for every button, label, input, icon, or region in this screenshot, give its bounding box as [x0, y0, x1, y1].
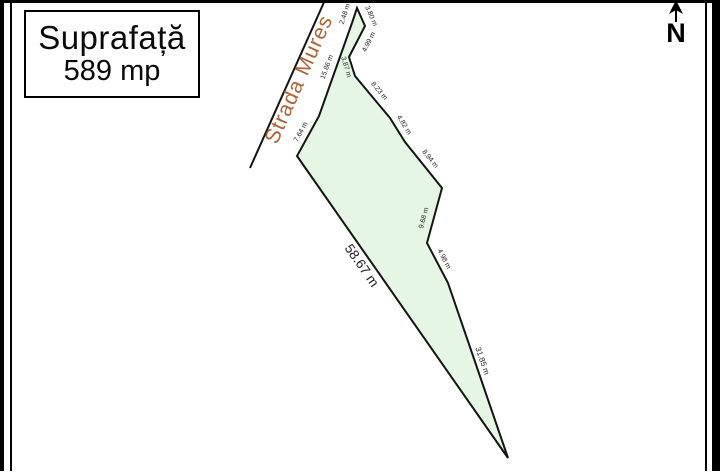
frame-right-inner	[705, 0, 707, 471]
cadastral-plan-page: 2.48 m3.80 m4.99 m3.87 m15.86 m7.64 m8.2…	[0, 0, 720, 475]
surface-area-box: Suprafață 589 mp	[24, 10, 200, 98]
frame-left-inner	[10, 0, 12, 471]
frame-left-outer	[0, 0, 4, 471]
north-arrow: N	[666, 0, 686, 48]
edge-measurement-label: 2.48 m	[339, 3, 352, 26]
frame-right-outer	[712, 0, 720, 471]
surface-area-value: 589 mp	[64, 56, 161, 88]
north-label: N	[666, 18, 686, 48]
surface-area-title: Suprafață	[38, 20, 186, 56]
frame-top-border	[0, 0, 720, 3]
edge-measurement-label: 3.80 m	[363, 5, 378, 28]
parcel-polygon	[297, 8, 508, 458]
edge-measurement-label: 4.99 m	[361, 31, 377, 53]
